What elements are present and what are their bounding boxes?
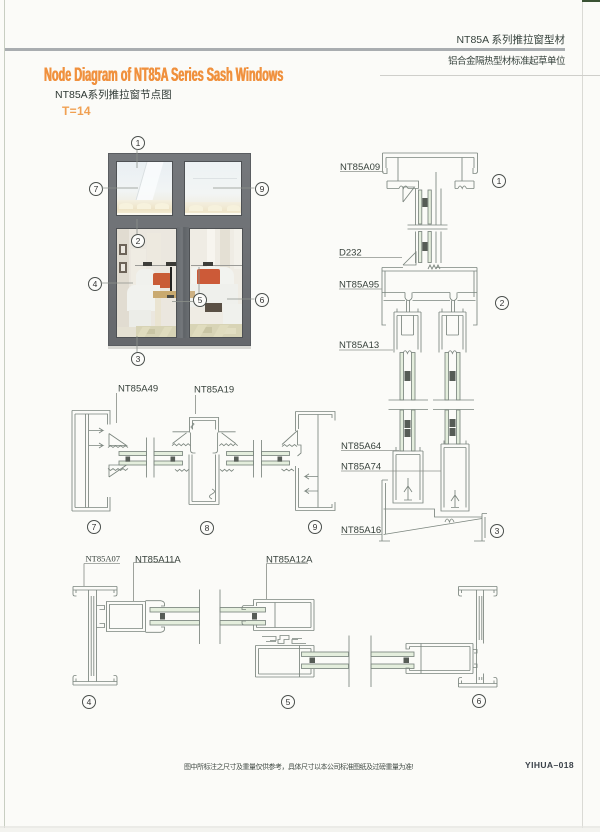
svg-text:NT85A07: NT85A07 xyxy=(86,554,120,564)
svg-text:NT85A13: NT85A13 xyxy=(339,340,379,351)
svg-text:NT85A49: NT85A49 xyxy=(118,384,158,395)
svg-text:NT85A74: NT85A74 xyxy=(341,462,381,473)
svg-text:NT85A95: NT85A95 xyxy=(339,280,379,291)
svg-text:NT85A12A: NT85A12A xyxy=(266,555,313,566)
svg-text:NT85A09: NT85A09 xyxy=(340,162,380,173)
svg-text:NT85A64: NT85A64 xyxy=(341,441,381,452)
svg-text:D232: D232 xyxy=(339,248,362,259)
svg-text:NT85A19: NT85A19 xyxy=(194,385,234,396)
svg-text:NT85A16: NT85A16 xyxy=(341,525,381,536)
svg-text:NT85A11A: NT85A11A xyxy=(135,555,181,566)
